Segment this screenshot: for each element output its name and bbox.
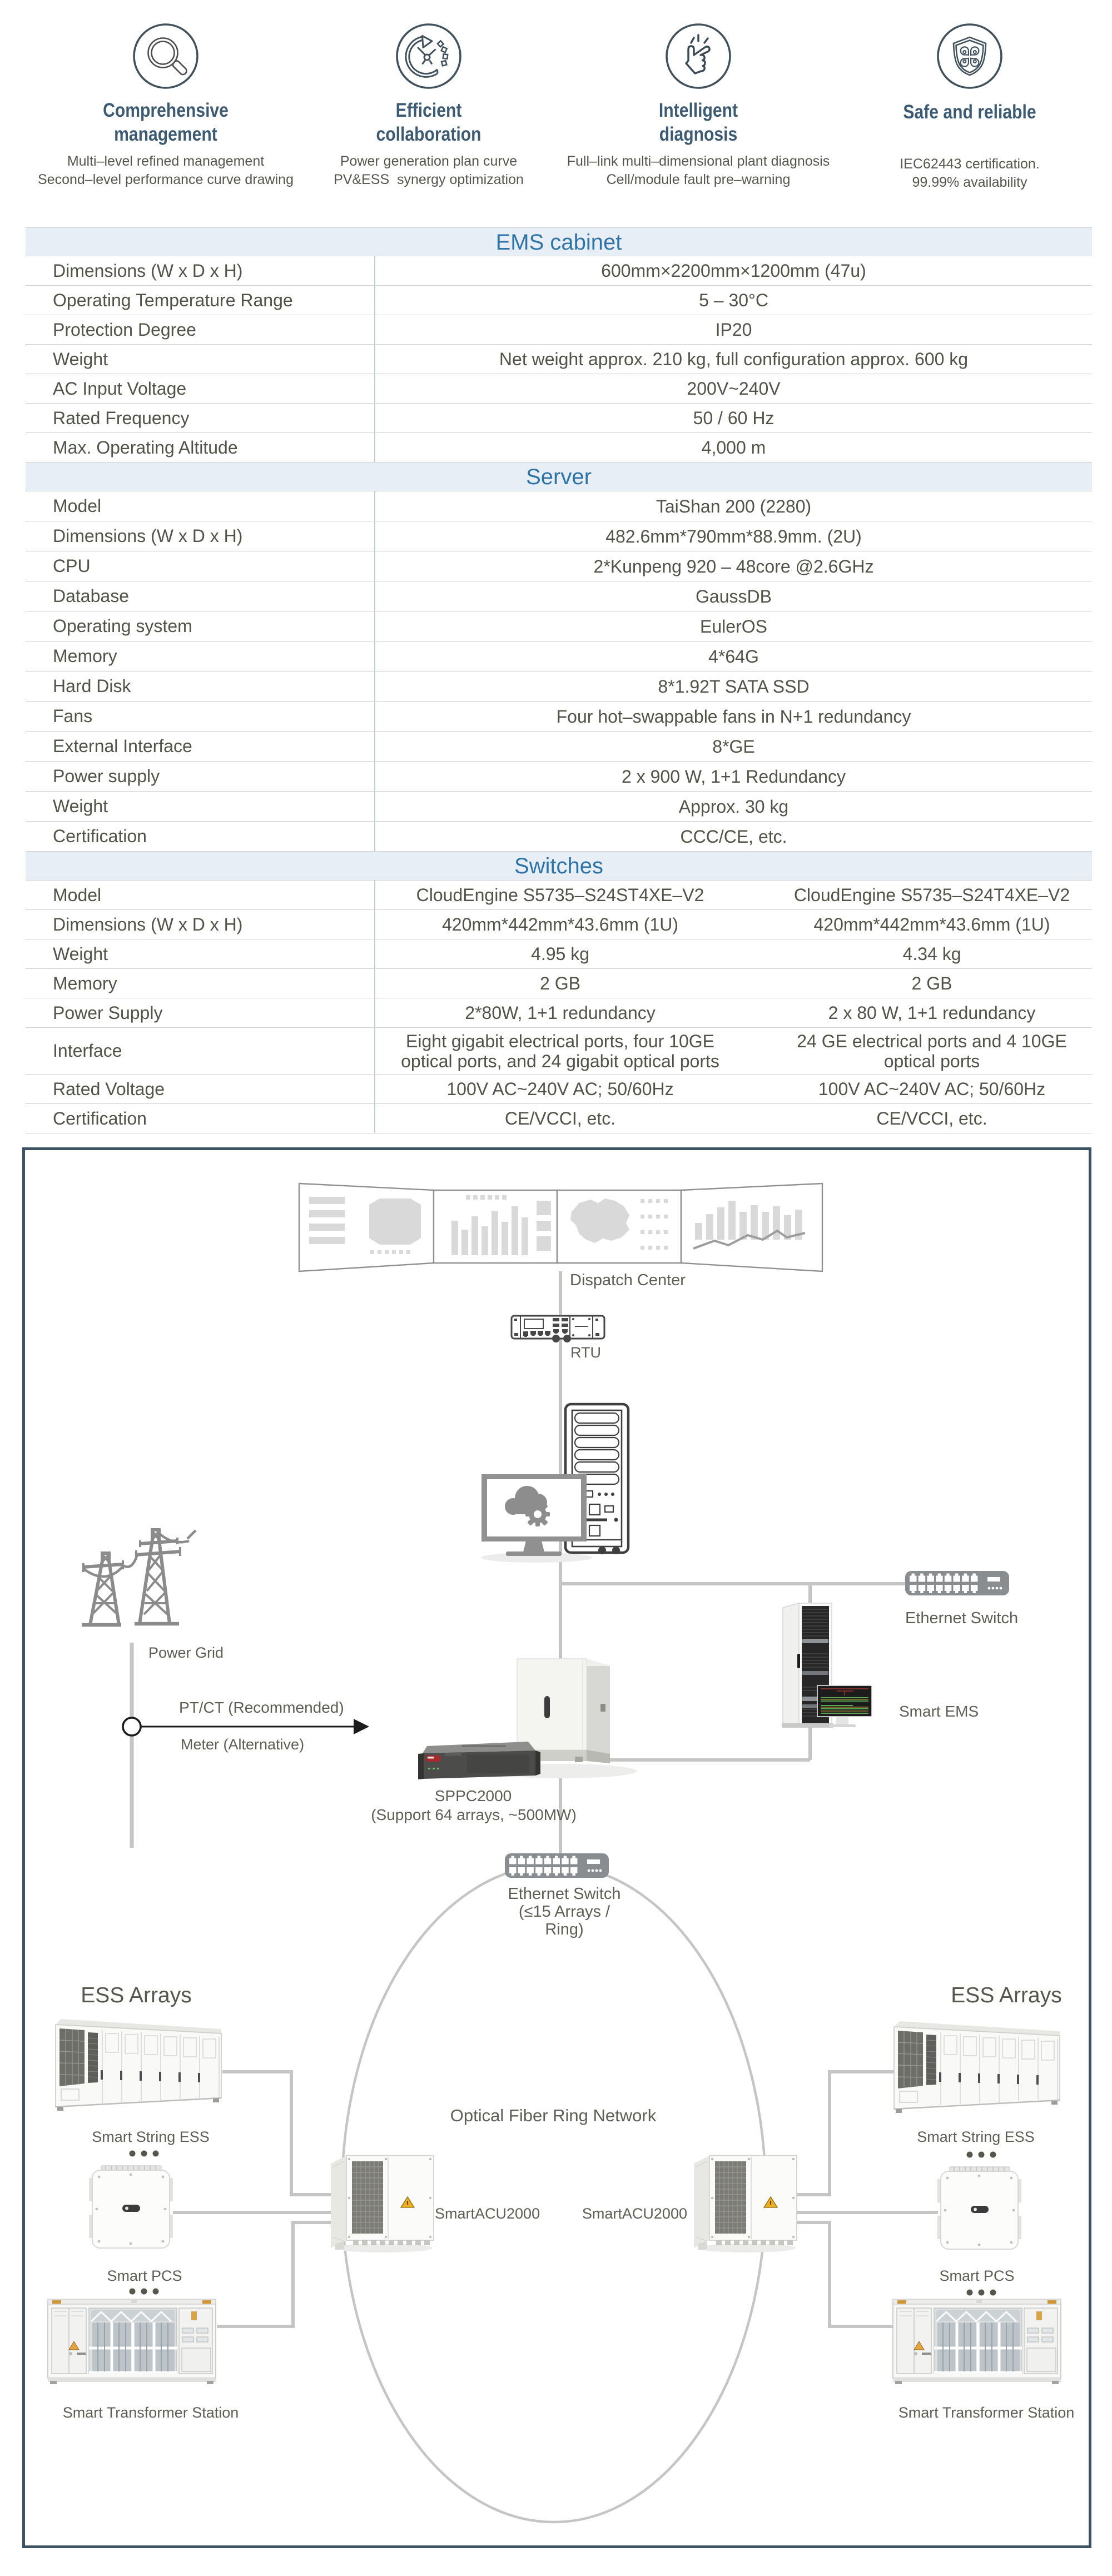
svg-text:SPPC2000: SPPC2000: [435, 1787, 512, 1804]
svg-text:Smart EMS: Smart EMS: [899, 1703, 979, 1720]
svg-text:Ethernet Switch: Ethernet Switch: [508, 1885, 620, 1903]
svg-text:Smart Transformer Station: Smart Transformer Station: [63, 2404, 239, 2421]
svg-text:ESS Arrays: ESS Arrays: [951, 1983, 1061, 2007]
svg-text:Optical Fiber Ring Network: Optical Fiber Ring Network: [450, 2106, 657, 2125]
svg-text:SmartACU2000: SmartACU2000: [435, 2205, 540, 2222]
svg-text:Dispatch Center: Dispatch Center: [570, 1271, 686, 1289]
svg-text:Power Grid: Power Grid: [148, 1644, 224, 1661]
svg-text:Smart Transformer Station: Smart Transformer Station: [898, 2404, 1075, 2421]
svg-text:(≤15 Arrays /: (≤15 Arrays /: [519, 1903, 610, 1921]
svg-text:PT/CT (Recommended): PT/CT (Recommended): [179, 1699, 344, 1716]
svg-text:Ring): Ring): [545, 1921, 583, 1938]
svg-text:Smart PCS: Smart PCS: [939, 2267, 1014, 2284]
svg-text:Ethernet Switch: Ethernet Switch: [905, 1609, 1018, 1627]
svg-text:Meter (Alternative): Meter (Alternative): [181, 1736, 304, 1753]
svg-text:(Support 64 arrays, ~500MW): (Support 64 arrays, ~500MW): [371, 1806, 577, 1823]
svg-text:RTU: RTU: [570, 1344, 601, 1361]
svg-text:ESS Arrays: ESS Arrays: [81, 1983, 191, 2007]
svg-text:Smart String ESS: Smart String ESS: [92, 2129, 210, 2145]
svg-text:Smart String ESS: Smart String ESS: [917, 2129, 1035, 2145]
svg-text:SmartACU2000: SmartACU2000: [582, 2205, 687, 2222]
svg-text:Smart PCS: Smart PCS: [107, 2267, 182, 2284]
